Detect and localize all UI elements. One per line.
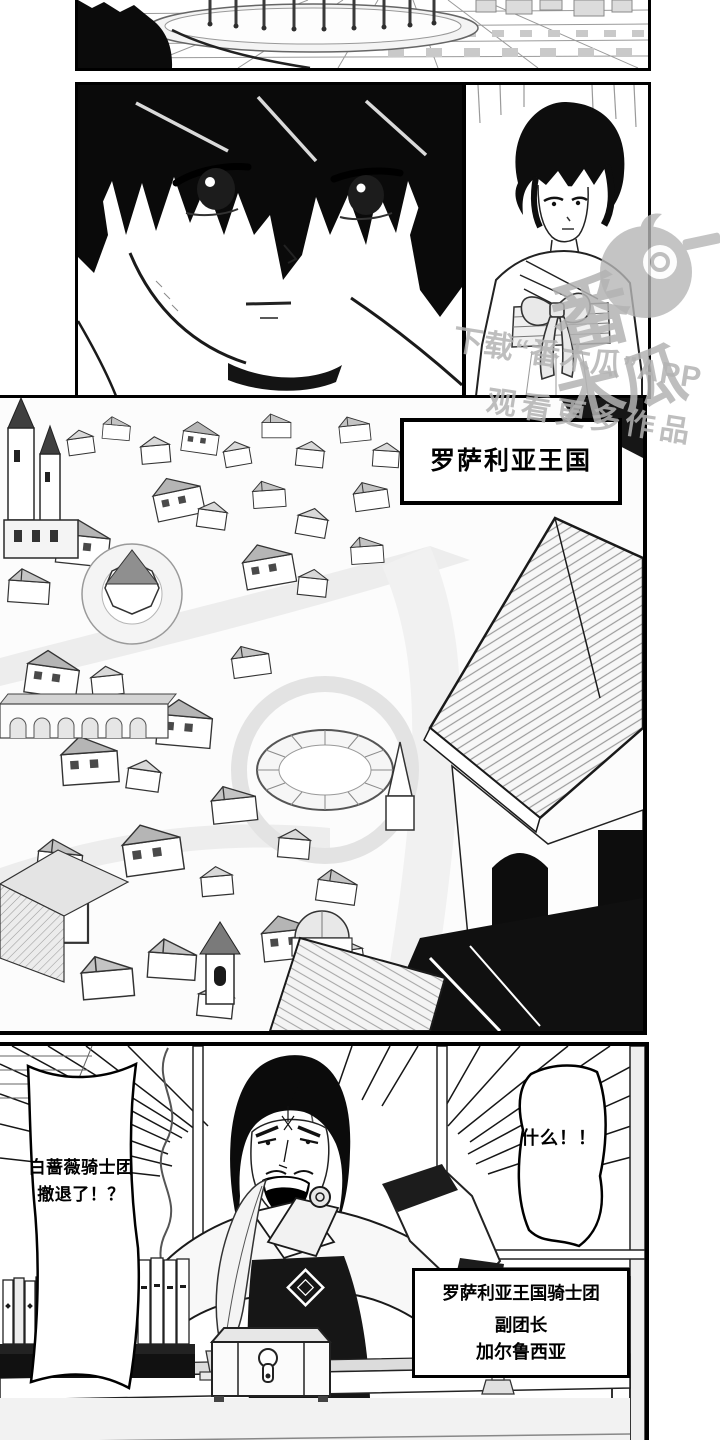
arcade-building [0, 694, 176, 738]
panel-boy [463, 82, 651, 399]
boy-artwork [466, 85, 648, 396]
panel-hall [75, 0, 651, 71]
panel-office: 白蔷薇骑士团 撤退了！？ 什么！！ [0, 1042, 649, 1440]
speech-bubble-left-shape [18, 1062, 144, 1394]
round-plaza [257, 730, 393, 810]
kingdom-caption-text: 罗萨利亚王国 [430, 445, 592, 479]
cape-clasp [310, 1187, 330, 1207]
character-caption-box: 罗萨利亚王国骑士团 副团长 加尔鲁西亚 [412, 1268, 630, 1378]
character-caption-line2: 副团长 [495, 1314, 548, 1338]
speech-text-right: 什么！！ [503, 1124, 615, 1150]
manga-page: 罗萨利亚王国 [0, 0, 720, 1440]
fountain-plaza [82, 544, 182, 644]
closeup-face-artwork [78, 85, 462, 396]
speech-bubble-left: 白蔷薇骑士团 撤退了！？ [18, 1062, 144, 1394]
kingdom-caption-box: 罗萨利亚王国 [400, 418, 622, 505]
speech-text-left: 白蔷薇骑士团 撤退了！？ [18, 1154, 144, 1208]
speech-bubble-right-shape [503, 1060, 615, 1252]
speech-text-left-line1: 白蔷薇骑士团 [18, 1154, 144, 1181]
speech-bubble-right: 什么！！ [503, 1060, 615, 1252]
speech-text-left-line2: 撤退了！？ [18, 1181, 144, 1208]
treasure-chest [212, 1328, 330, 1402]
character-caption-line1: 罗萨利亚王国骑士团 [442, 1282, 600, 1306]
panel-closeup-face [75, 82, 465, 399]
character-caption-line3: 加尔鲁西亚 [476, 1340, 566, 1364]
hall-artwork [78, 0, 648, 68]
